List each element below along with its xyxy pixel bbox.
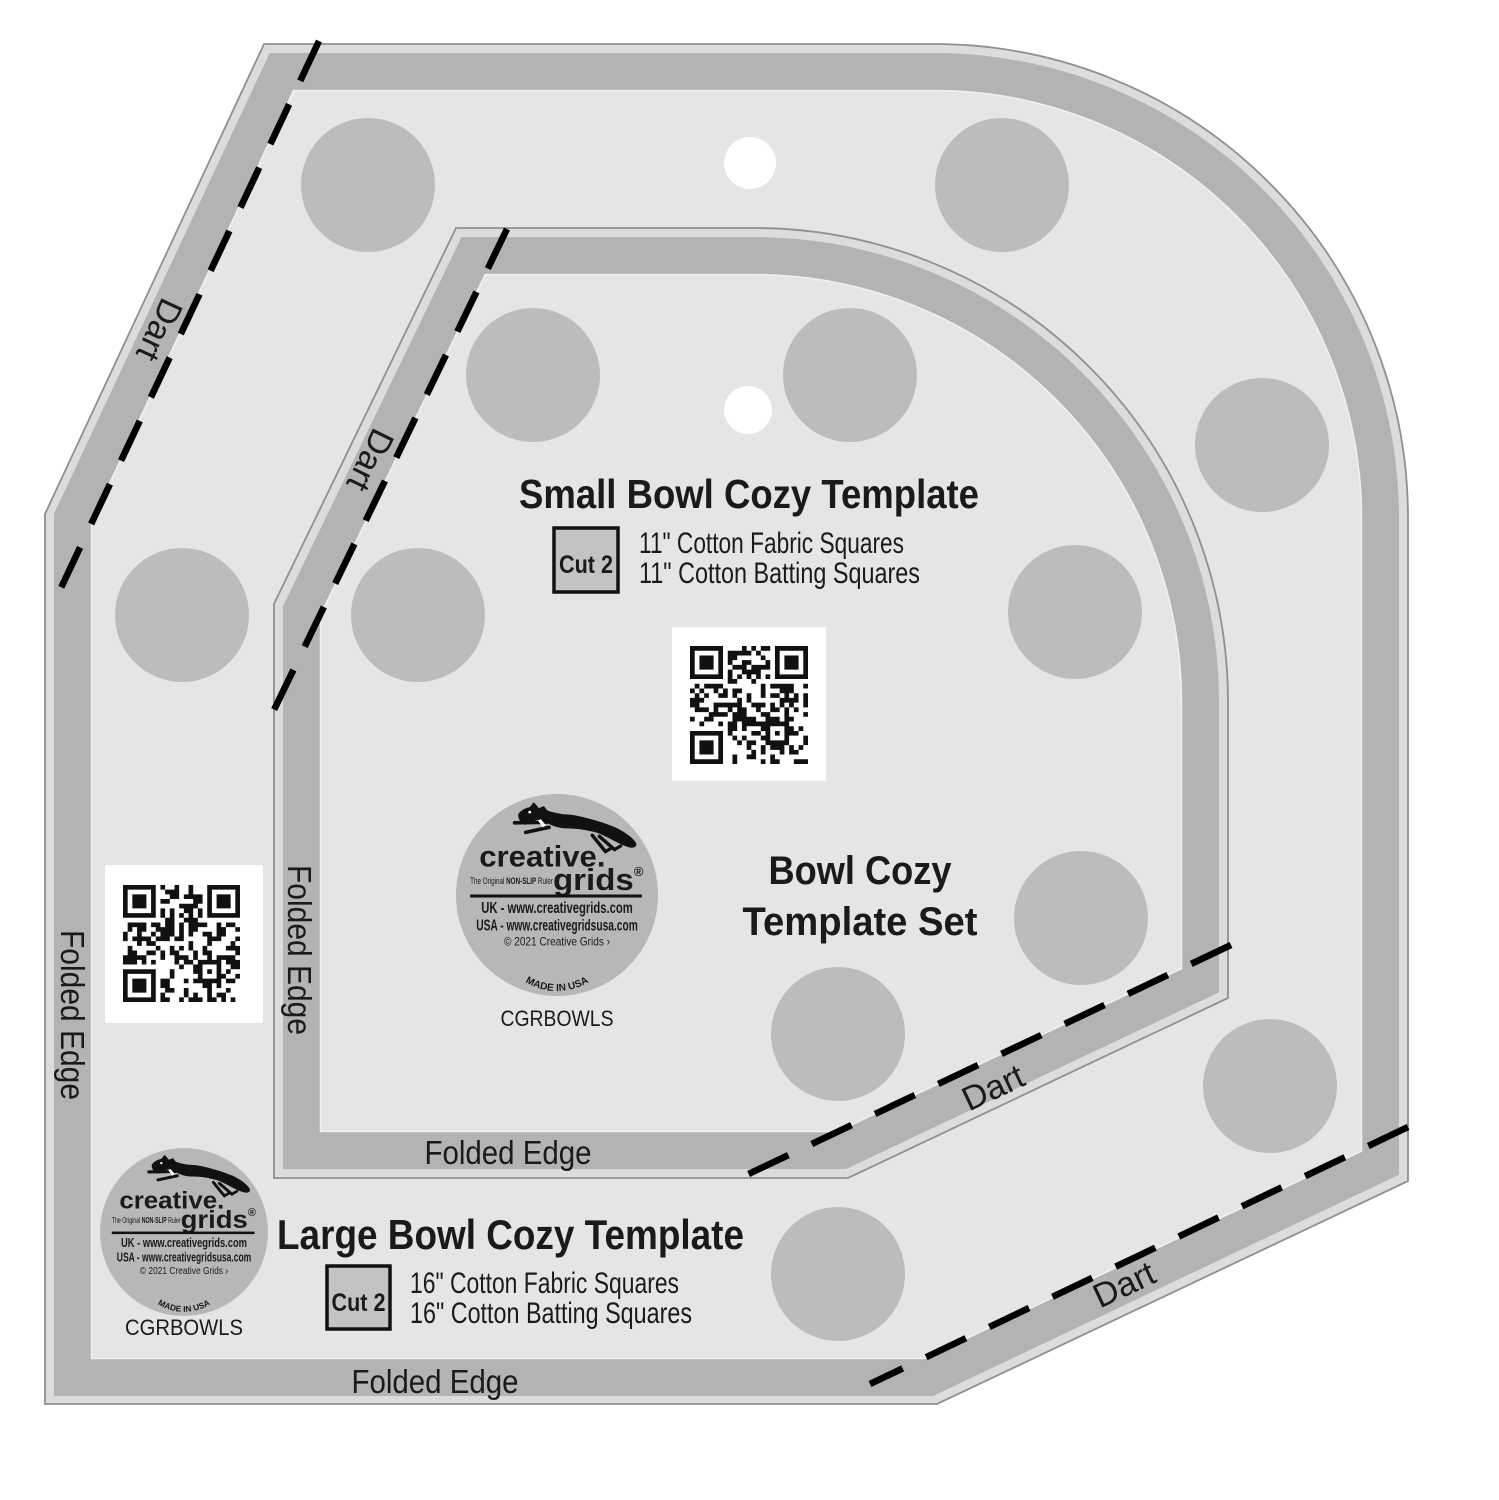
svg-text:UK - www.creativegrids.com: UK - www.creativegrids.com [481, 900, 633, 917]
svg-text:Folded Edge: Folded Edge [281, 865, 318, 1035]
svg-text:CGRBOWLS: CGRBOWLS [501, 1006, 614, 1031]
svg-text:grids: grids [181, 1206, 248, 1234]
svg-text:Large Bowl Cozy Template: Large Bowl Cozy Template [277, 1211, 744, 1258]
svg-text:®: ® [634, 864, 644, 879]
svg-text:Folded Edge: Folded Edge [425, 1134, 592, 1171]
svg-text:grids: grids [553, 864, 634, 897]
svg-text:®: ® [248, 1207, 256, 1219]
svg-text:UK - www.creativegrids.com: UK - www.creativegrids.com [121, 1235, 247, 1250]
svg-text:The Original NON-SLIP Ruler: The Original NON-SLIP Ruler [470, 876, 553, 887]
svg-text:11" Cotton Batting Squares: 11" Cotton Batting Squares [639, 557, 920, 590]
svg-text:© 2021 Creative Grids ›: © 2021 Creative Grids › [140, 1266, 228, 1277]
svg-text:Small Bowl Cozy Template: Small Bowl Cozy Template [519, 471, 979, 517]
svg-text:Folded Edge: Folded Edge [352, 1363, 519, 1400]
svg-text:CGRBOWLS: CGRBOWLS [125, 1315, 243, 1340]
svg-text:11" Cotton Fabric Squares: 11" Cotton Fabric Squares [639, 527, 904, 560]
svg-text:The Original NON-SLIP Ruler: The Original NON-SLIP Ruler [112, 1216, 181, 1225]
svg-text:USA - www.creativegridsusa.com: USA - www.creativegridsusa.com [117, 1249, 251, 1264]
svg-text:Cut 2: Cut 2 [559, 551, 613, 579]
svg-text:© 2021 Creative Grids ›: © 2021 Creative Grids › [504, 935, 610, 949]
svg-text:16" Cotton Batting Squares: 16" Cotton Batting Squares [410, 1297, 692, 1330]
svg-text:USA - www.creativegridsusa.com: USA - www.creativegridsusa.com [476, 917, 638, 934]
svg-text:Cut 2: Cut 2 [332, 1289, 386, 1317]
svg-text:16" Cotton Fabric Squares: 16" Cotton Fabric Squares [410, 1267, 679, 1300]
svg-text:Bowl Cozy: Bowl Cozy [769, 849, 953, 893]
svg-text:Template Set: Template Set [743, 900, 978, 944]
svg-text:Folded Edge: Folded Edge [54, 930, 91, 1100]
